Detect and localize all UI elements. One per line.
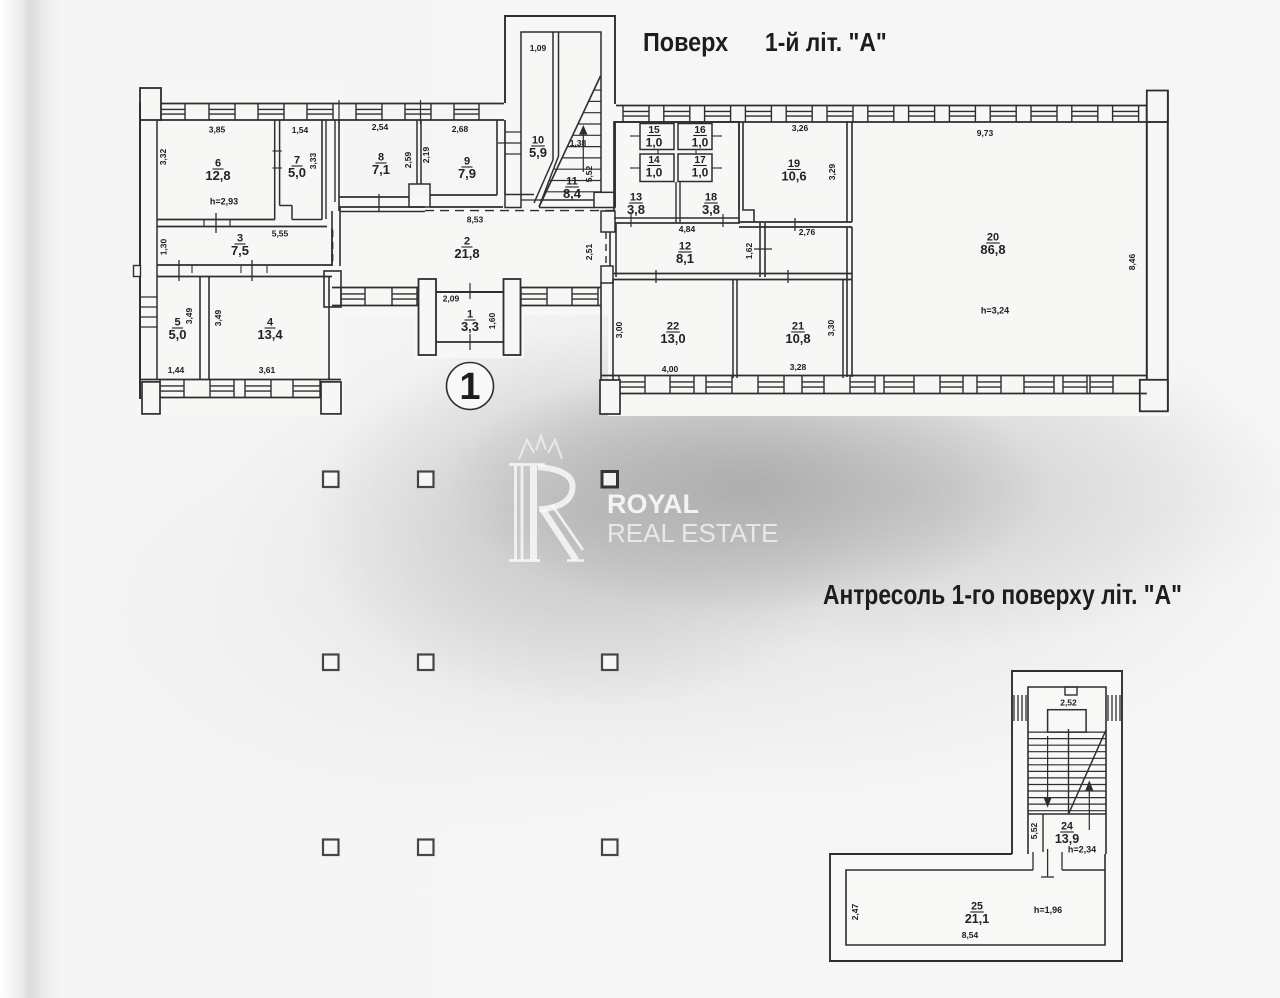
svg-text:3,30: 3,30	[826, 319, 836, 336]
svg-text:2,47: 2,47	[850, 903, 860, 920]
svg-text:2,59: 2,59	[403, 151, 413, 168]
svg-text:8,46: 8,46	[1127, 253, 1137, 270]
svg-text:3,32: 3,32	[158, 148, 168, 165]
svg-text:8,53: 8,53	[467, 215, 484, 225]
svg-text:1,0: 1,0	[646, 166, 663, 180]
svg-text:3,85: 3,85	[209, 125, 226, 135]
svg-text:4,84: 4,84	[679, 224, 696, 234]
svg-text:21,1: 21,1	[965, 912, 989, 926]
svg-text:3,29: 3,29	[827, 163, 837, 180]
svg-text:10,8: 10,8	[785, 331, 810, 346]
svg-text:2,68: 2,68	[452, 124, 469, 134]
svg-text:1,62: 1,62	[744, 242, 754, 259]
svg-text:25: 25	[971, 901, 983, 913]
svg-text:8,4: 8,4	[563, 186, 582, 201]
svg-text:5,52: 5,52	[1029, 822, 1039, 839]
svg-text:Антресоль 1-го поверху літ. ": Антресоль 1-го поверху літ. "А"	[823, 580, 1182, 611]
svg-text:86,8: 86,8	[980, 242, 1005, 257]
svg-text:1,54: 1,54	[292, 125, 309, 135]
svg-text:1,0: 1,0	[692, 166, 709, 180]
svg-text:7,9: 7,9	[458, 166, 476, 181]
svg-text:h=1,96: h=1,96	[1034, 905, 1062, 915]
svg-text:2,19: 2,19	[421, 146, 431, 163]
svg-text:5,0: 5,0	[288, 165, 306, 180]
svg-text:3,49: 3,49	[184, 307, 194, 324]
svg-text:REAL ESTATE: REAL ESTATE	[607, 518, 778, 548]
svg-text:14: 14	[648, 155, 660, 166]
svg-text:12,8: 12,8	[205, 168, 230, 183]
svg-text:ROYAL: ROYAL	[607, 489, 699, 519]
svg-text:7,1: 7,1	[372, 162, 390, 177]
svg-text:2,52: 2,52	[1060, 698, 1077, 708]
svg-text:Поверх: Поверх	[643, 29, 728, 57]
svg-text:1,09: 1,09	[530, 43, 547, 53]
svg-text:2,76: 2,76	[799, 227, 816, 237]
svg-text:h=2,93: h=2,93	[210, 197, 238, 207]
svg-text:8,1: 8,1	[676, 251, 694, 266]
svg-text:1,38: 1,38	[570, 138, 587, 148]
svg-text:2,51: 2,51	[584, 243, 594, 260]
svg-text:1,0: 1,0	[646, 136, 663, 150]
svg-text:21,8: 21,8	[454, 246, 479, 261]
svg-text:5,9: 5,9	[529, 145, 547, 160]
svg-text:5,55: 5,55	[272, 229, 289, 239]
svg-text:3,49: 3,49	[213, 309, 223, 326]
svg-text:3,00: 3,00	[614, 321, 624, 338]
svg-text:5,52: 5,52	[584, 165, 594, 182]
svg-text:1: 1	[459, 366, 480, 408]
svg-text:1,0: 1,0	[692, 136, 709, 150]
svg-text:5,0: 5,0	[168, 327, 186, 342]
svg-text:3,26: 3,26	[792, 123, 809, 133]
svg-text:9,73: 9,73	[977, 128, 994, 138]
svg-text:2,54: 2,54	[372, 122, 389, 132]
svg-text:1,60: 1,60	[487, 312, 497, 329]
svg-text:3,28: 3,28	[790, 362, 807, 372]
svg-text:4,00: 4,00	[662, 364, 679, 374]
svg-text:3,8: 3,8	[627, 202, 645, 217]
svg-text:3,61: 3,61	[259, 365, 276, 375]
svg-text:17: 17	[694, 155, 706, 166]
svg-text:7,5: 7,5	[231, 243, 249, 258]
svg-text:h=2,34: h=2,34	[1068, 845, 1096, 855]
svg-text:24: 24	[1061, 821, 1073, 833]
svg-text:13,0: 13,0	[660, 331, 685, 346]
svg-text:3,3: 3,3	[461, 319, 479, 334]
svg-text:3,33: 3,33	[308, 152, 318, 169]
svg-text:1,30: 1,30	[159, 238, 169, 255]
svg-text:8,54: 8,54	[962, 930, 979, 940]
svg-text:3,8: 3,8	[702, 202, 720, 217]
svg-text:1-й літ. "А": 1-й літ. "А"	[765, 29, 887, 58]
svg-text:1,44: 1,44	[168, 365, 185, 375]
svg-text:16: 16	[694, 125, 706, 136]
svg-text:2,09: 2,09	[443, 294, 460, 304]
svg-text:h=3,24: h=3,24	[981, 306, 1009, 316]
svg-text:13,4: 13,4	[257, 327, 283, 342]
svg-text:15: 15	[648, 125, 660, 136]
svg-text:10,6: 10,6	[781, 169, 806, 184]
